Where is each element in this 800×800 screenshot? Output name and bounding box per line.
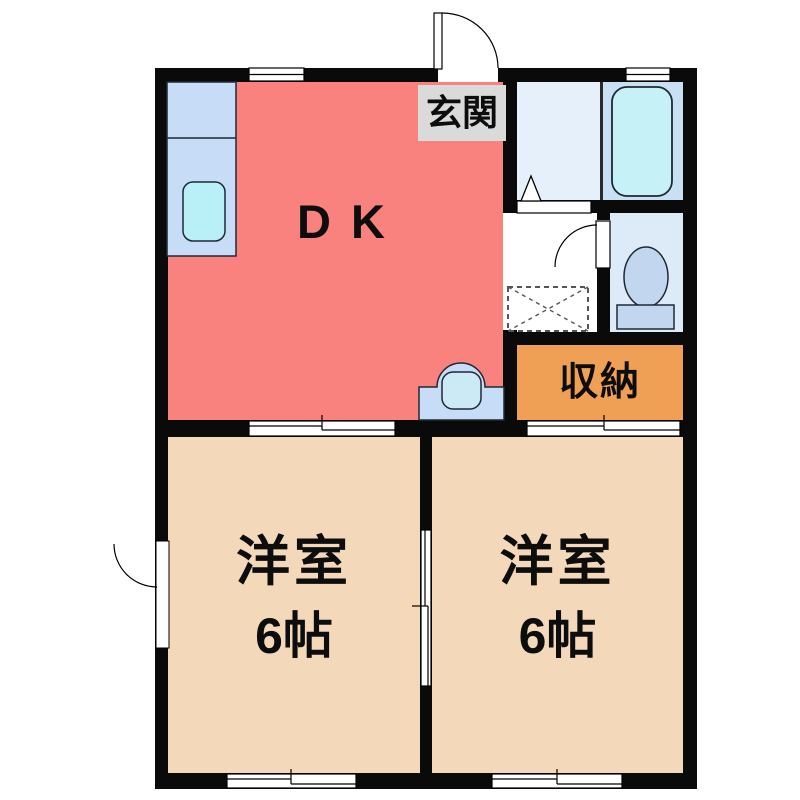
kitchen-sink [183,182,225,241]
entrance-door-opening [438,68,498,82]
wall-toilet-left-upper [597,213,610,221]
label-room-right-name: 洋室 [432,528,683,596]
wall-storage-top [503,332,683,345]
label-dk: DK [241,194,441,248]
label-genkan: 玄関 [418,85,506,141]
label-room-left-name: 洋室 [168,528,420,596]
partition-washroom-bathroom [600,82,603,200]
wall-left [155,68,168,789]
label-room-right-size: 6帖 [432,604,683,668]
wall-right [683,68,697,789]
entrance-door-arc [442,13,498,68]
washroom-door-threshold [517,201,591,213]
toilet-tank [617,305,674,329]
wall-top [155,68,697,82]
toilet-bowl [624,247,668,307]
bathtub [612,87,672,196]
hallway-floor [503,213,597,332]
vanity-bowl [442,372,481,409]
sliding-door-between-rooms [421,530,431,686]
entrance-door-leaf [434,13,442,69]
label-room-left-size: 6帖 [168,604,420,668]
toilet-door-leaf [596,221,610,268]
left-wall-door-arc [114,544,157,587]
wall-toilet-left-lower [597,267,610,332]
label-storage: 収納 [517,348,683,416]
floor-plan: 玄関 DK 収納 洋室 6帖 洋室 6帖 [0,0,800,800]
